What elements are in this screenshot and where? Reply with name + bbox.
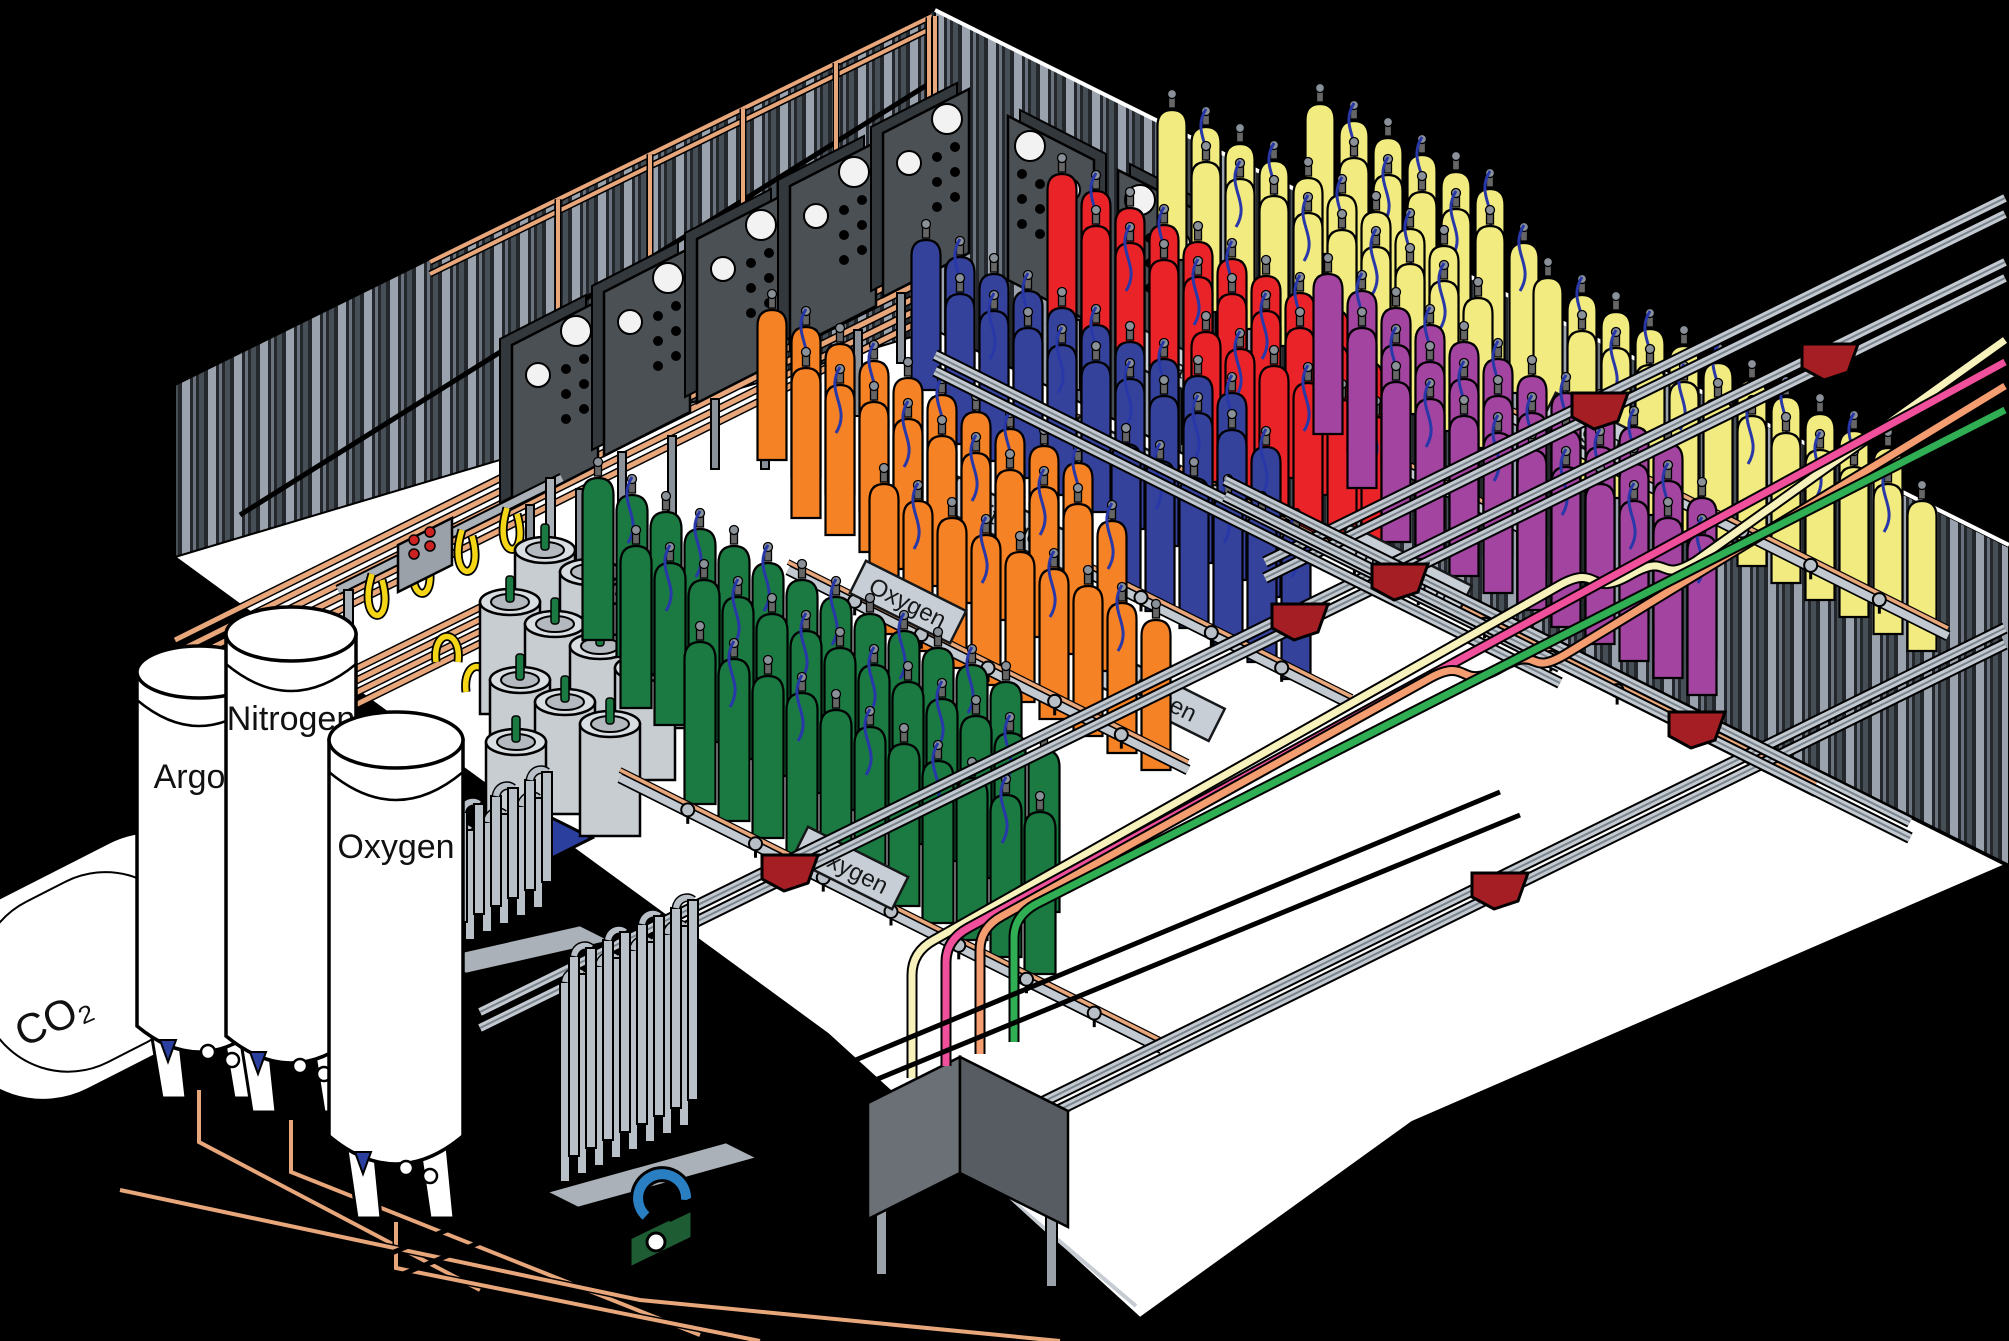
- valve-handwheel: [1296, 308, 1305, 317]
- valve-handwheel: [1782, 413, 1791, 422]
- panel-port: [579, 404, 589, 414]
- gas-cylinder: [792, 368, 821, 518]
- valve-handwheel: [836, 324, 845, 333]
- valve-handwheel: [880, 464, 889, 473]
- valve-handwheel: [1528, 356, 1537, 365]
- gas-plant-illustration: ArgonArgonCarbon DioxideHeliumNitrogenNi…: [0, 0, 2009, 1341]
- gauge-dial: [1015, 131, 1045, 161]
- valve-handwheel: [700, 560, 709, 569]
- panel-port: [746, 283, 756, 293]
- vaporizer-tube: [586, 948, 596, 1148]
- fill-regulator: [1873, 593, 1886, 606]
- red-button: [409, 535, 419, 545]
- valve-handwheel: [768, 290, 777, 299]
- gauge-dial: [618, 310, 642, 334]
- panel-port: [561, 364, 571, 374]
- panel-port: [671, 326, 681, 336]
- panel-port: [932, 177, 942, 187]
- vaporizer-tube: [620, 932, 630, 1132]
- dewar-valve: [551, 598, 559, 624]
- vaporizer-tube: [542, 772, 552, 882]
- valve-handwheel: [1122, 424, 1131, 433]
- gas-cylinder: [1518, 450, 1547, 610]
- valve-handwheel: [948, 498, 957, 507]
- panel-port: [746, 258, 756, 268]
- vaporizer-tube: [525, 780, 535, 890]
- gas-cylinder: [912, 240, 941, 390]
- valve-handwheel: [956, 274, 965, 283]
- valve-handwheel: [836, 628, 845, 637]
- valve-handwheel: [1316, 84, 1325, 93]
- panel-port: [746, 308, 756, 318]
- panel-port: [857, 245, 867, 255]
- fill-regulator: [1275, 661, 1288, 674]
- valve-handwheel: [1194, 356, 1203, 365]
- panel-port: [1017, 169, 1027, 179]
- valve-handwheel: [1392, 288, 1401, 297]
- valve-handwheel: [1270, 346, 1279, 355]
- valve-handwheel: [1074, 484, 1083, 493]
- valve-handwheel: [1084, 566, 1093, 575]
- vaporizer-tube: [637, 924, 647, 1124]
- panel-port: [932, 202, 942, 212]
- valve-handwheel: [1544, 258, 1553, 267]
- fill-regulator: [1205, 626, 1218, 639]
- gas-cylinder: [1314, 274, 1343, 434]
- panel-port: [653, 336, 663, 346]
- fill-regulator: [681, 803, 694, 816]
- vaporizer-tube: [654, 916, 664, 1116]
- valve-handwheel: [1092, 342, 1101, 351]
- gauge-dial: [932, 104, 962, 134]
- valve-handwheel: [1486, 206, 1495, 215]
- valve-handwheel: [922, 220, 931, 229]
- valve-handwheel: [1126, 188, 1135, 197]
- gauge-dial: [746, 210, 776, 240]
- valve-handwheel: [1418, 172, 1427, 181]
- vaporizer-tube: [603, 940, 613, 1140]
- vaporizer-tube: [671, 908, 681, 1108]
- gauge-dial: [711, 257, 735, 281]
- panel-leg: [711, 399, 719, 469]
- isometric-scene: ArgonArgonCarbon DioxideHeliumNitrogenNi…: [0, 0, 2009, 1341]
- valve-handwheel: [1578, 311, 1587, 320]
- fill-regulator: [1088, 1007, 1101, 1020]
- valve-handwheel: [1714, 379, 1723, 388]
- valve-handwheel: [1152, 600, 1161, 609]
- valve-handwheel: [1474, 278, 1483, 287]
- panel-port: [1017, 219, 1027, 229]
- vaporizer-tube: [474, 804, 484, 914]
- valve-handwheel: [1036, 792, 1045, 801]
- dewar-valve: [541, 524, 549, 550]
- dewar-valve: [516, 654, 524, 680]
- panel-port: [839, 205, 849, 215]
- gas-cylinder: [1348, 328, 1377, 488]
- gauge-dial: [561, 316, 591, 346]
- gas-cylinder: [621, 546, 652, 708]
- valve-handwheel: [1918, 481, 1927, 490]
- gauge-dial: [526, 363, 550, 387]
- valve-handwheel: [1126, 322, 1135, 331]
- valve-handwheel: [1816, 394, 1825, 403]
- valve-handwheel: [1168, 90, 1177, 99]
- valve-handwheel: [1228, 410, 1237, 419]
- valve-handwheel: [934, 628, 943, 637]
- panel-port: [950, 167, 960, 177]
- valve-handwheel: [900, 724, 909, 733]
- fill-regulator: [1020, 973, 1033, 986]
- valve-handwheel: [1058, 154, 1067, 163]
- dewar: [580, 698, 640, 836]
- valve-handwheel: [632, 526, 641, 535]
- valve-handwheel: [1698, 478, 1707, 487]
- valve-handwheel: [904, 662, 913, 671]
- valve-handwheel: [1612, 292, 1621, 301]
- valve-handwheel: [1160, 240, 1169, 249]
- gauge-dial: [804, 204, 828, 228]
- panel-port: [1035, 204, 1045, 214]
- valve-handwheel: [990, 254, 999, 263]
- panel-port: [1017, 194, 1027, 204]
- panel-port: [561, 414, 571, 424]
- fill-regulator: [1048, 695, 1061, 708]
- valve-handwheel: [730, 526, 739, 535]
- dewar-valve: [506, 576, 514, 602]
- valve-handwheel: [1358, 308, 1367, 317]
- red-button: [425, 527, 435, 537]
- panel-port: [857, 195, 867, 205]
- valve-handwheel: [696, 622, 705, 631]
- dewar-valve: [606, 698, 614, 724]
- gas-cylinder: [753, 676, 784, 838]
- panel-port: [671, 301, 681, 311]
- panel-port: [671, 351, 681, 361]
- gauge-dial: [839, 157, 869, 187]
- valve-handwheel: [1748, 360, 1757, 369]
- valve-handwheel: [764, 656, 773, 665]
- valve-handwheel: [1304, 158, 1313, 167]
- valve-handwheel: [1384, 118, 1393, 127]
- valve-handwheel: [1002, 662, 1011, 671]
- valve-handwheel: [1228, 274, 1237, 283]
- valve-handwheel: [972, 696, 981, 705]
- gas-cylinder: [685, 642, 716, 804]
- valve-handwheel: [1406, 244, 1415, 253]
- gauge-dial: [897, 151, 921, 175]
- panel-port: [839, 255, 849, 265]
- panel-port: [950, 142, 960, 152]
- valve-handwheel: [832, 690, 841, 699]
- oxygen-bulk-tank: [329, 712, 463, 1218]
- panel-port: [1035, 229, 1045, 239]
- gauge-dial: [653, 263, 683, 293]
- valve-handwheel: [1664, 498, 1673, 507]
- dewar-valve: [512, 716, 520, 742]
- panel-port: [579, 379, 589, 389]
- fill-regulator: [1115, 728, 1128, 741]
- valve-handwheel: [1194, 222, 1203, 231]
- valve-handwheel: [1324, 254, 1333, 263]
- fill-regulator: [1804, 559, 1817, 572]
- vaporizer-tube: [491, 796, 501, 906]
- panel-port: [653, 361, 663, 371]
- valve-handwheel: [1460, 396, 1469, 405]
- valve-handwheel: [1270, 176, 1279, 185]
- valve-handwheel: [870, 382, 879, 391]
- dewar-valve: [561, 676, 569, 702]
- vaporizer-tube: [569, 956, 579, 1156]
- valve-handwheel: [1202, 312, 1211, 321]
- red-button: [425, 541, 435, 551]
- valve-handwheel: [768, 594, 777, 603]
- valve-handwheel: [1350, 138, 1359, 147]
- panel-port: [764, 273, 774, 283]
- gas-cylinder: [758, 310, 787, 460]
- valve-handwheel: [1646, 345, 1655, 354]
- valve-handwheel: [1452, 152, 1461, 161]
- valve-handwheel: [1190, 458, 1199, 467]
- valve-handwheel: [1236, 124, 1245, 133]
- valve-handwheel: [1202, 142, 1211, 151]
- vaporizer-tube: [508, 788, 518, 898]
- gas-cylinder: [583, 478, 614, 640]
- valve-handwheel: [1392, 362, 1401, 371]
- panel-port: [857, 220, 867, 230]
- panel-port: [579, 354, 589, 364]
- fill-regulator: [1135, 591, 1148, 604]
- valve-handwheel: [662, 492, 671, 501]
- valve-handwheel: [1680, 326, 1689, 335]
- valve-handwheel: [1092, 206, 1101, 215]
- vaporizer-tube: [688, 900, 698, 1100]
- valve-handwheel: [1338, 210, 1347, 219]
- valve-handwheel: [594, 458, 603, 467]
- valve-handwheel: [1426, 342, 1435, 351]
- panel-port: [1035, 179, 1045, 189]
- panel-leg: [897, 293, 905, 363]
- oxygen-tank-label: Oxygen: [337, 828, 454, 866]
- valve-handwheel: [1058, 288, 1067, 297]
- panel-port: [839, 230, 849, 240]
- valve-handwheel: [1024, 308, 1033, 317]
- valve-handwheel: [1494, 376, 1503, 385]
- panel-port: [932, 152, 942, 162]
- valve-handwheel: [938, 416, 947, 425]
- valve-handwheel: [1160, 376, 1169, 385]
- valve-handwheel: [1006, 450, 1015, 459]
- valve-handwheel: [1372, 192, 1381, 201]
- valve-handwheel: [866, 594, 875, 603]
- valve-handwheel: [1262, 256, 1271, 265]
- panel-port: [653, 311, 663, 321]
- valve-handwheel: [1016, 532, 1025, 541]
- valve-handwheel: [904, 358, 913, 367]
- red-button: [409, 549, 419, 559]
- valve-handwheel: [1440, 226, 1449, 235]
- panel-port: [950, 192, 960, 202]
- valve-handwheel: [802, 348, 811, 357]
- valve-handwheel: [1460, 322, 1469, 331]
- fill-regulator: [749, 837, 762, 850]
- panel-port: [764, 248, 774, 258]
- valve-handwheel: [798, 560, 807, 569]
- panel-port: [561, 389, 571, 399]
